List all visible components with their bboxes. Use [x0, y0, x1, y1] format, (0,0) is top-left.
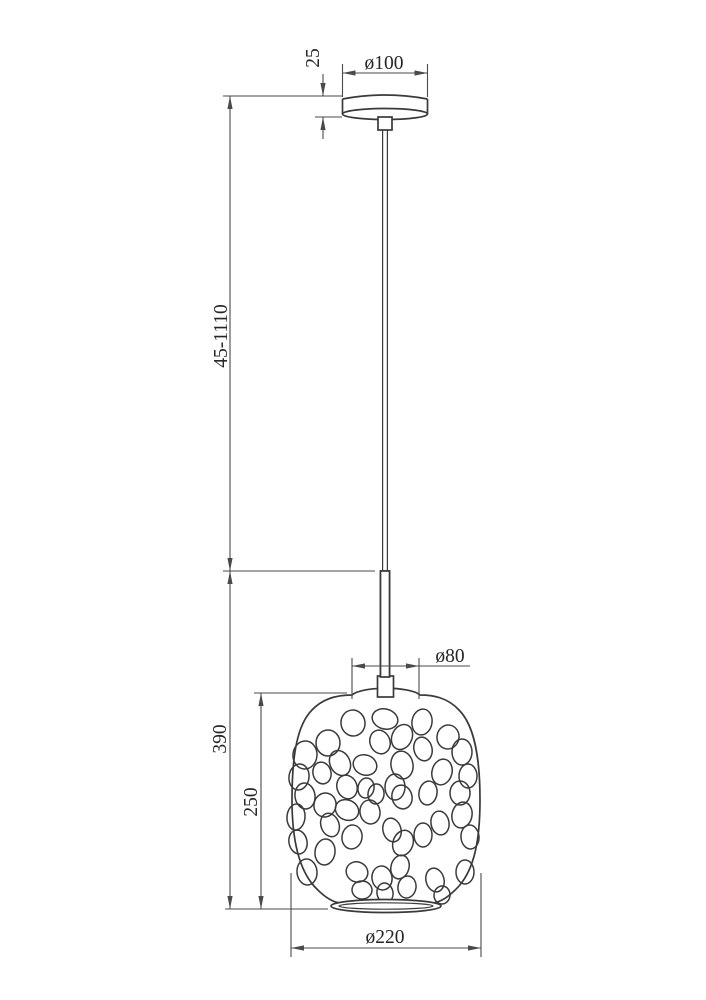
socket-cap	[378, 676, 394, 697]
dim-label-shade-diameter: ø220	[366, 927, 405, 948]
cord-grip	[378, 117, 392, 130]
dim-label-canopy-height: 25	[303, 48, 324, 68]
suspension-cord	[383, 130, 388, 571]
technical-drawing-canvas: ø100 25 45-1110 390 250 ø80	[0, 0, 706, 1000]
dim-label-suspension-height: 45-1110	[211, 304, 232, 368]
dim-canopy-diameter: ø100	[343, 53, 428, 97]
lamp-object	[286, 95, 480, 913]
stem-rod-front	[381, 571, 390, 677]
ceiling-canopy	[343, 95, 428, 130]
dim-label-shade-top-diameter: ø80	[435, 646, 464, 667]
dim-canopy-height: 25	[223, 48, 342, 139]
dim-label-body-height: 390	[210, 724, 231, 753]
dim-label-shade-height: 250	[241, 787, 262, 816]
dim-label-canopy-diameter: ø100	[365, 53, 404, 74]
pendant-lamp-dimension-drawing: ø100 25 45-1110 390 250 ø80	[0, 0, 706, 1000]
bottom-ring	[331, 900, 441, 913]
shade-outline	[292, 688, 480, 903]
dim-suspension-height: 45-1110	[211, 96, 375, 571]
